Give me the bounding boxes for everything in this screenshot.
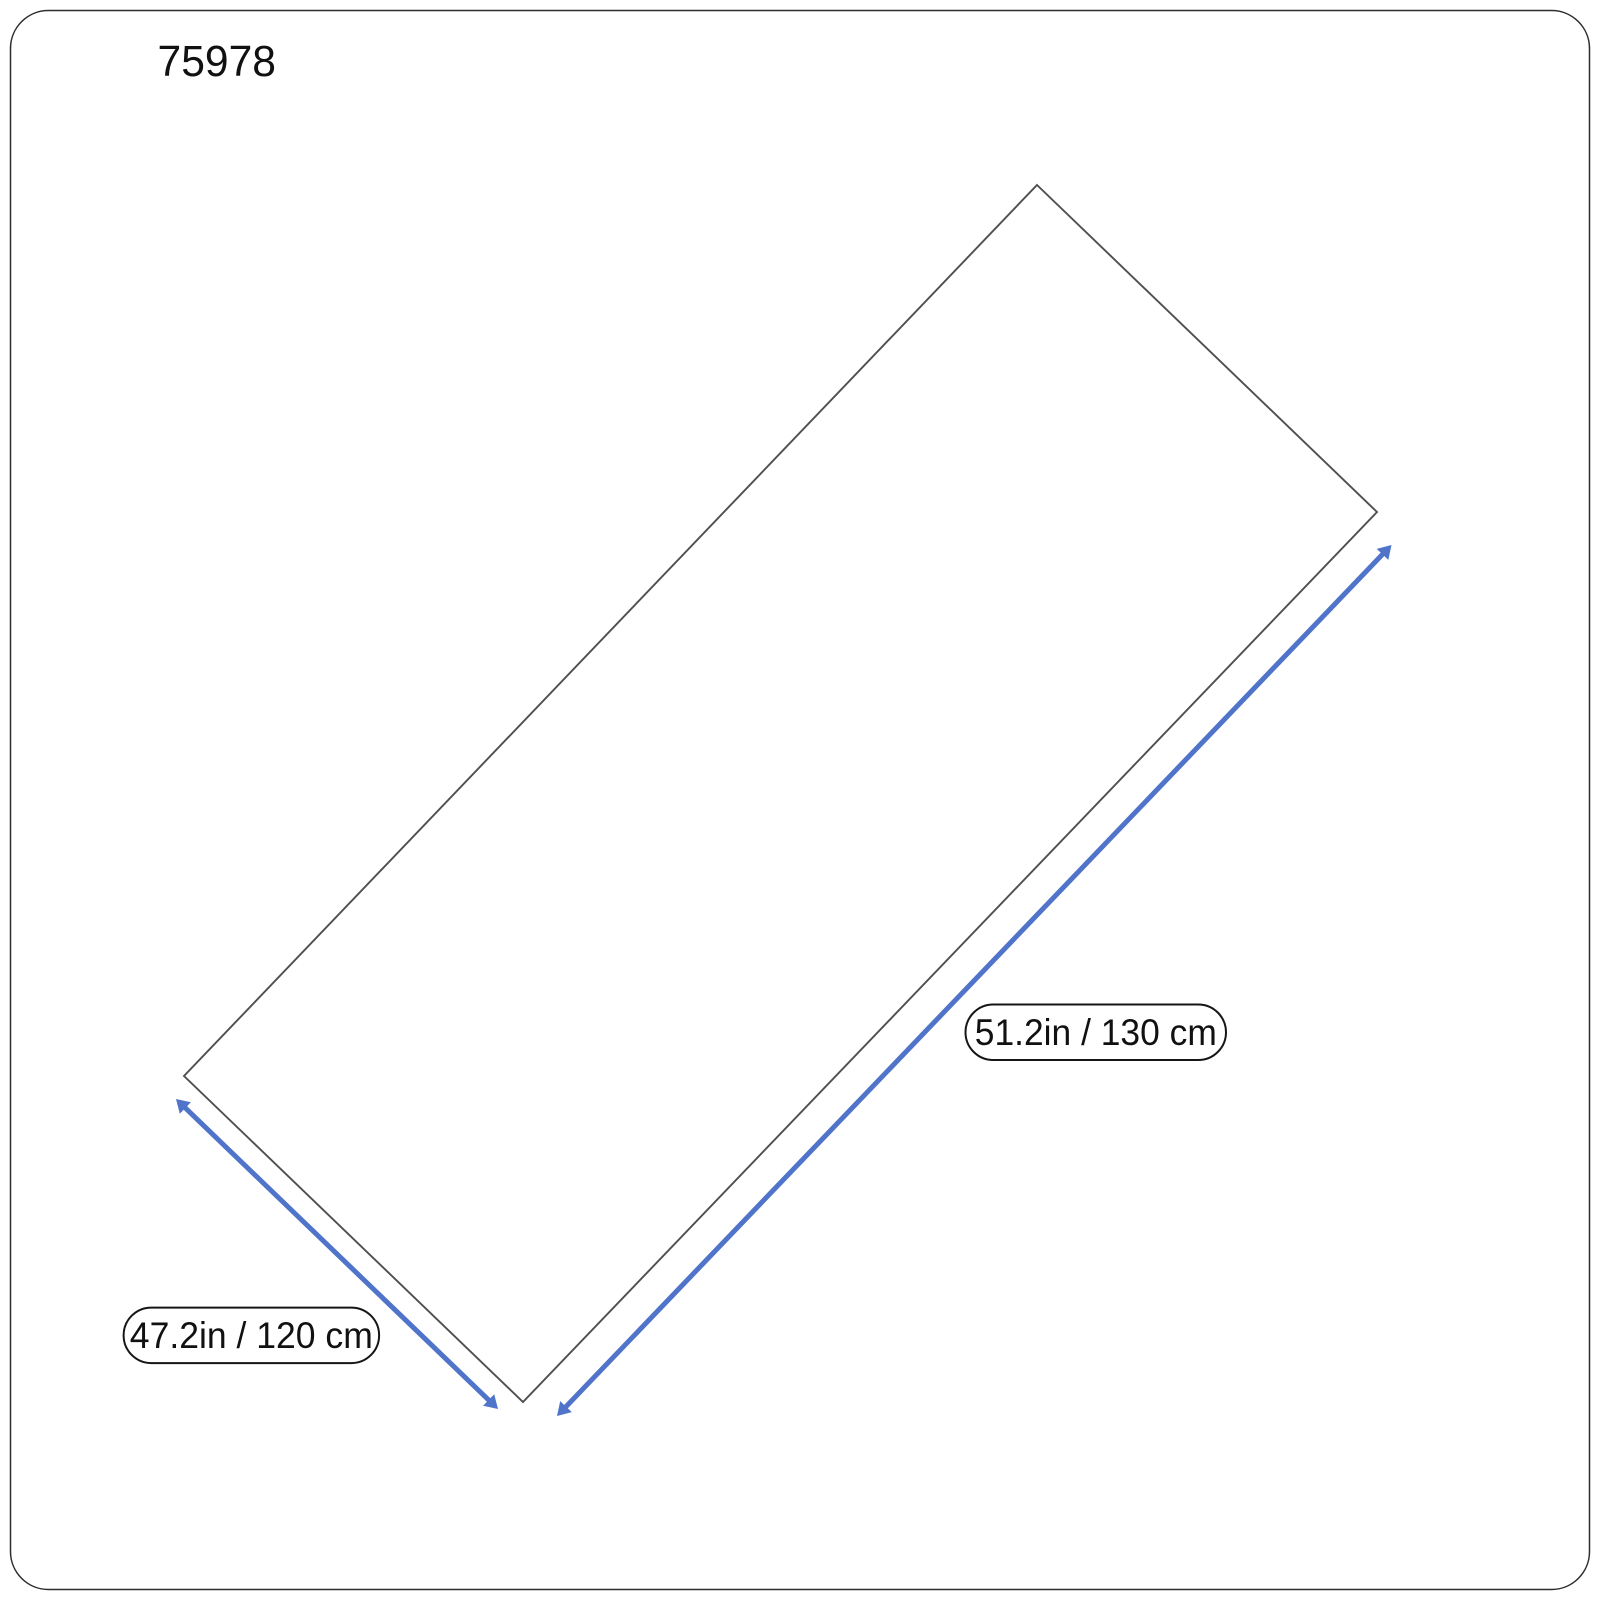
svg-text:75978: 75978 <box>158 38 277 86</box>
svg-text:51.2in / 130 cm: 51.2in / 130 cm <box>975 1012 1217 1053</box>
svg-text:47.2in / 120 cm: 47.2in / 120 cm <box>130 1315 373 1356</box>
